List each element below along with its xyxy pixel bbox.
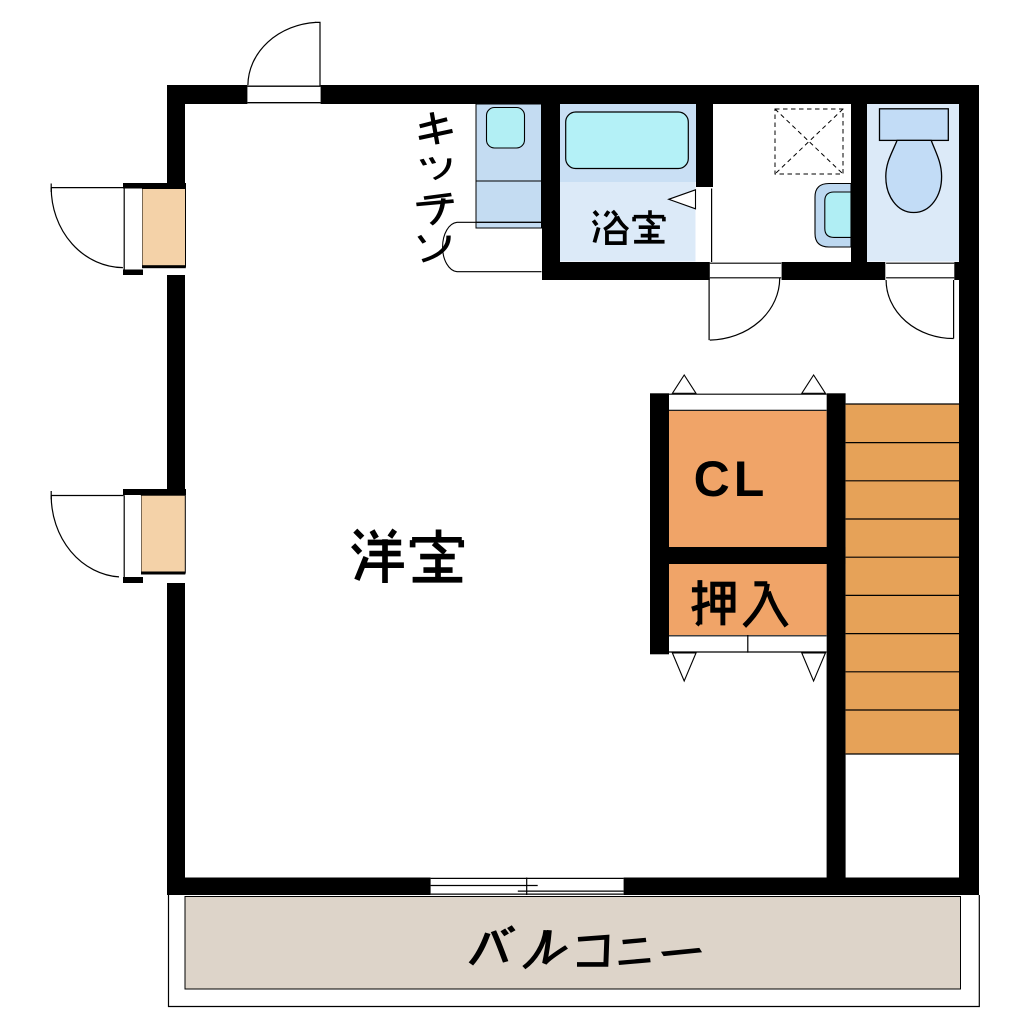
svg-text:CL: CL xyxy=(694,451,769,507)
